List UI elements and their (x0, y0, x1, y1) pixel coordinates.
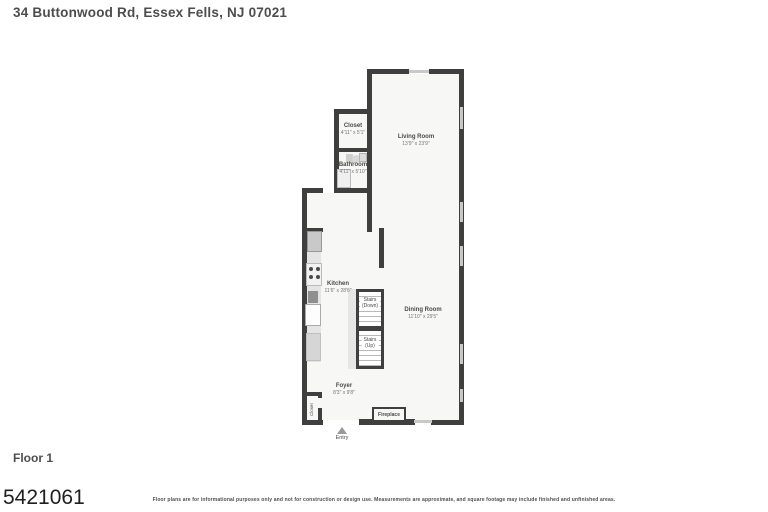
stairs-up-label: Stairs (Up) (362, 337, 379, 349)
closet-top-name: Closet (341, 123, 365, 130)
stairs-up-line2: (Up) (364, 343, 377, 349)
bathroom-name: Bathroom (339, 162, 367, 169)
refrigerator-icon (307, 231, 322, 252)
living-room-dims: 13'9" x 23'9" (398, 141, 434, 147)
wall-kitchen-dining-stub (379, 228, 384, 268)
floor-plan: Stairs (Down) Stairs (Up) Fireplace Clos… (0, 0, 768, 512)
stairs-down (356, 289, 384, 329)
fireplace: Fireplace (372, 407, 406, 422)
closet-top-dims: 4'11" x 5'1" (341, 130, 365, 136)
foyer-dims: 8'3" x 9'8" (333, 390, 355, 396)
living-room-label: Living Room 13'9" x 23'9" (398, 134, 434, 147)
bathroom-label: Bathroom 4'11" x 5'10" (339, 162, 367, 175)
stairs-down-line2: (Down) (362, 303, 378, 309)
kitchen-sink-icon (308, 291, 318, 303)
wall-closet-bottom-right-b (318, 408, 322, 425)
window-right-4 (460, 344, 463, 364)
window-right-3 (460, 246, 463, 266)
bathroom-dims: 4'11" x 5'10" (339, 169, 367, 175)
wall-closet-bottom-right-a (318, 392, 322, 398)
living-room-name: Living Room (398, 134, 434, 141)
dining-room-label: Dining Room 11'10" x 29'5" (404, 307, 441, 320)
wall-kitchen-top-left (302, 188, 323, 193)
wall-bottom-right-segment (431, 420, 464, 425)
stairs-side-strip (348, 289, 356, 369)
dining-room-dims: 11'10" x 29'5" (404, 314, 441, 320)
wall-top-left-segment (368, 69, 409, 74)
window-right-2 (460, 202, 463, 222)
stairs-down-label: Stairs (Down) (360, 297, 380, 309)
dishwasher-icon (305, 304, 321, 326)
closet-top-label: Closet 4'11" x 5'1" (341, 123, 365, 136)
disclaimer-text: Floor plans are for informational purpos… (0, 497, 768, 503)
stove-burners-icon (309, 267, 322, 282)
floor-label: Floor 1 (13, 451, 53, 465)
window-right-1 (460, 107, 463, 129)
wall-closet-bath-divider (334, 148, 372, 152)
fireplace-label: Fireplace (378, 412, 400, 418)
window-bottom (414, 420, 432, 423)
bathroom-sink-icon (359, 153, 367, 162)
foyer-label: Foyer 8'3" x 9'8" (333, 383, 355, 396)
kitchen-appliance-icon (306, 333, 321, 361)
entry-arrow-icon (337, 427, 347, 434)
dining-room-name: Dining Room (404, 307, 441, 314)
window-top (409, 70, 429, 73)
kitchen-name: Kitchen (324, 281, 351, 288)
closet-bottom-label: Closet (309, 403, 314, 416)
window-right-5 (460, 389, 463, 402)
kitchen-dims: 11'6" x 28'6" (324, 288, 351, 294)
entry-label: Entry (336, 435, 349, 441)
page-title: 34 Buttonwood Rd, Essex Fells, NJ 07021 (13, 5, 287, 20)
kitchen-label: Kitchen 11'6" x 28'6" (324, 281, 351, 294)
foyer-name: Foyer (333, 383, 355, 390)
